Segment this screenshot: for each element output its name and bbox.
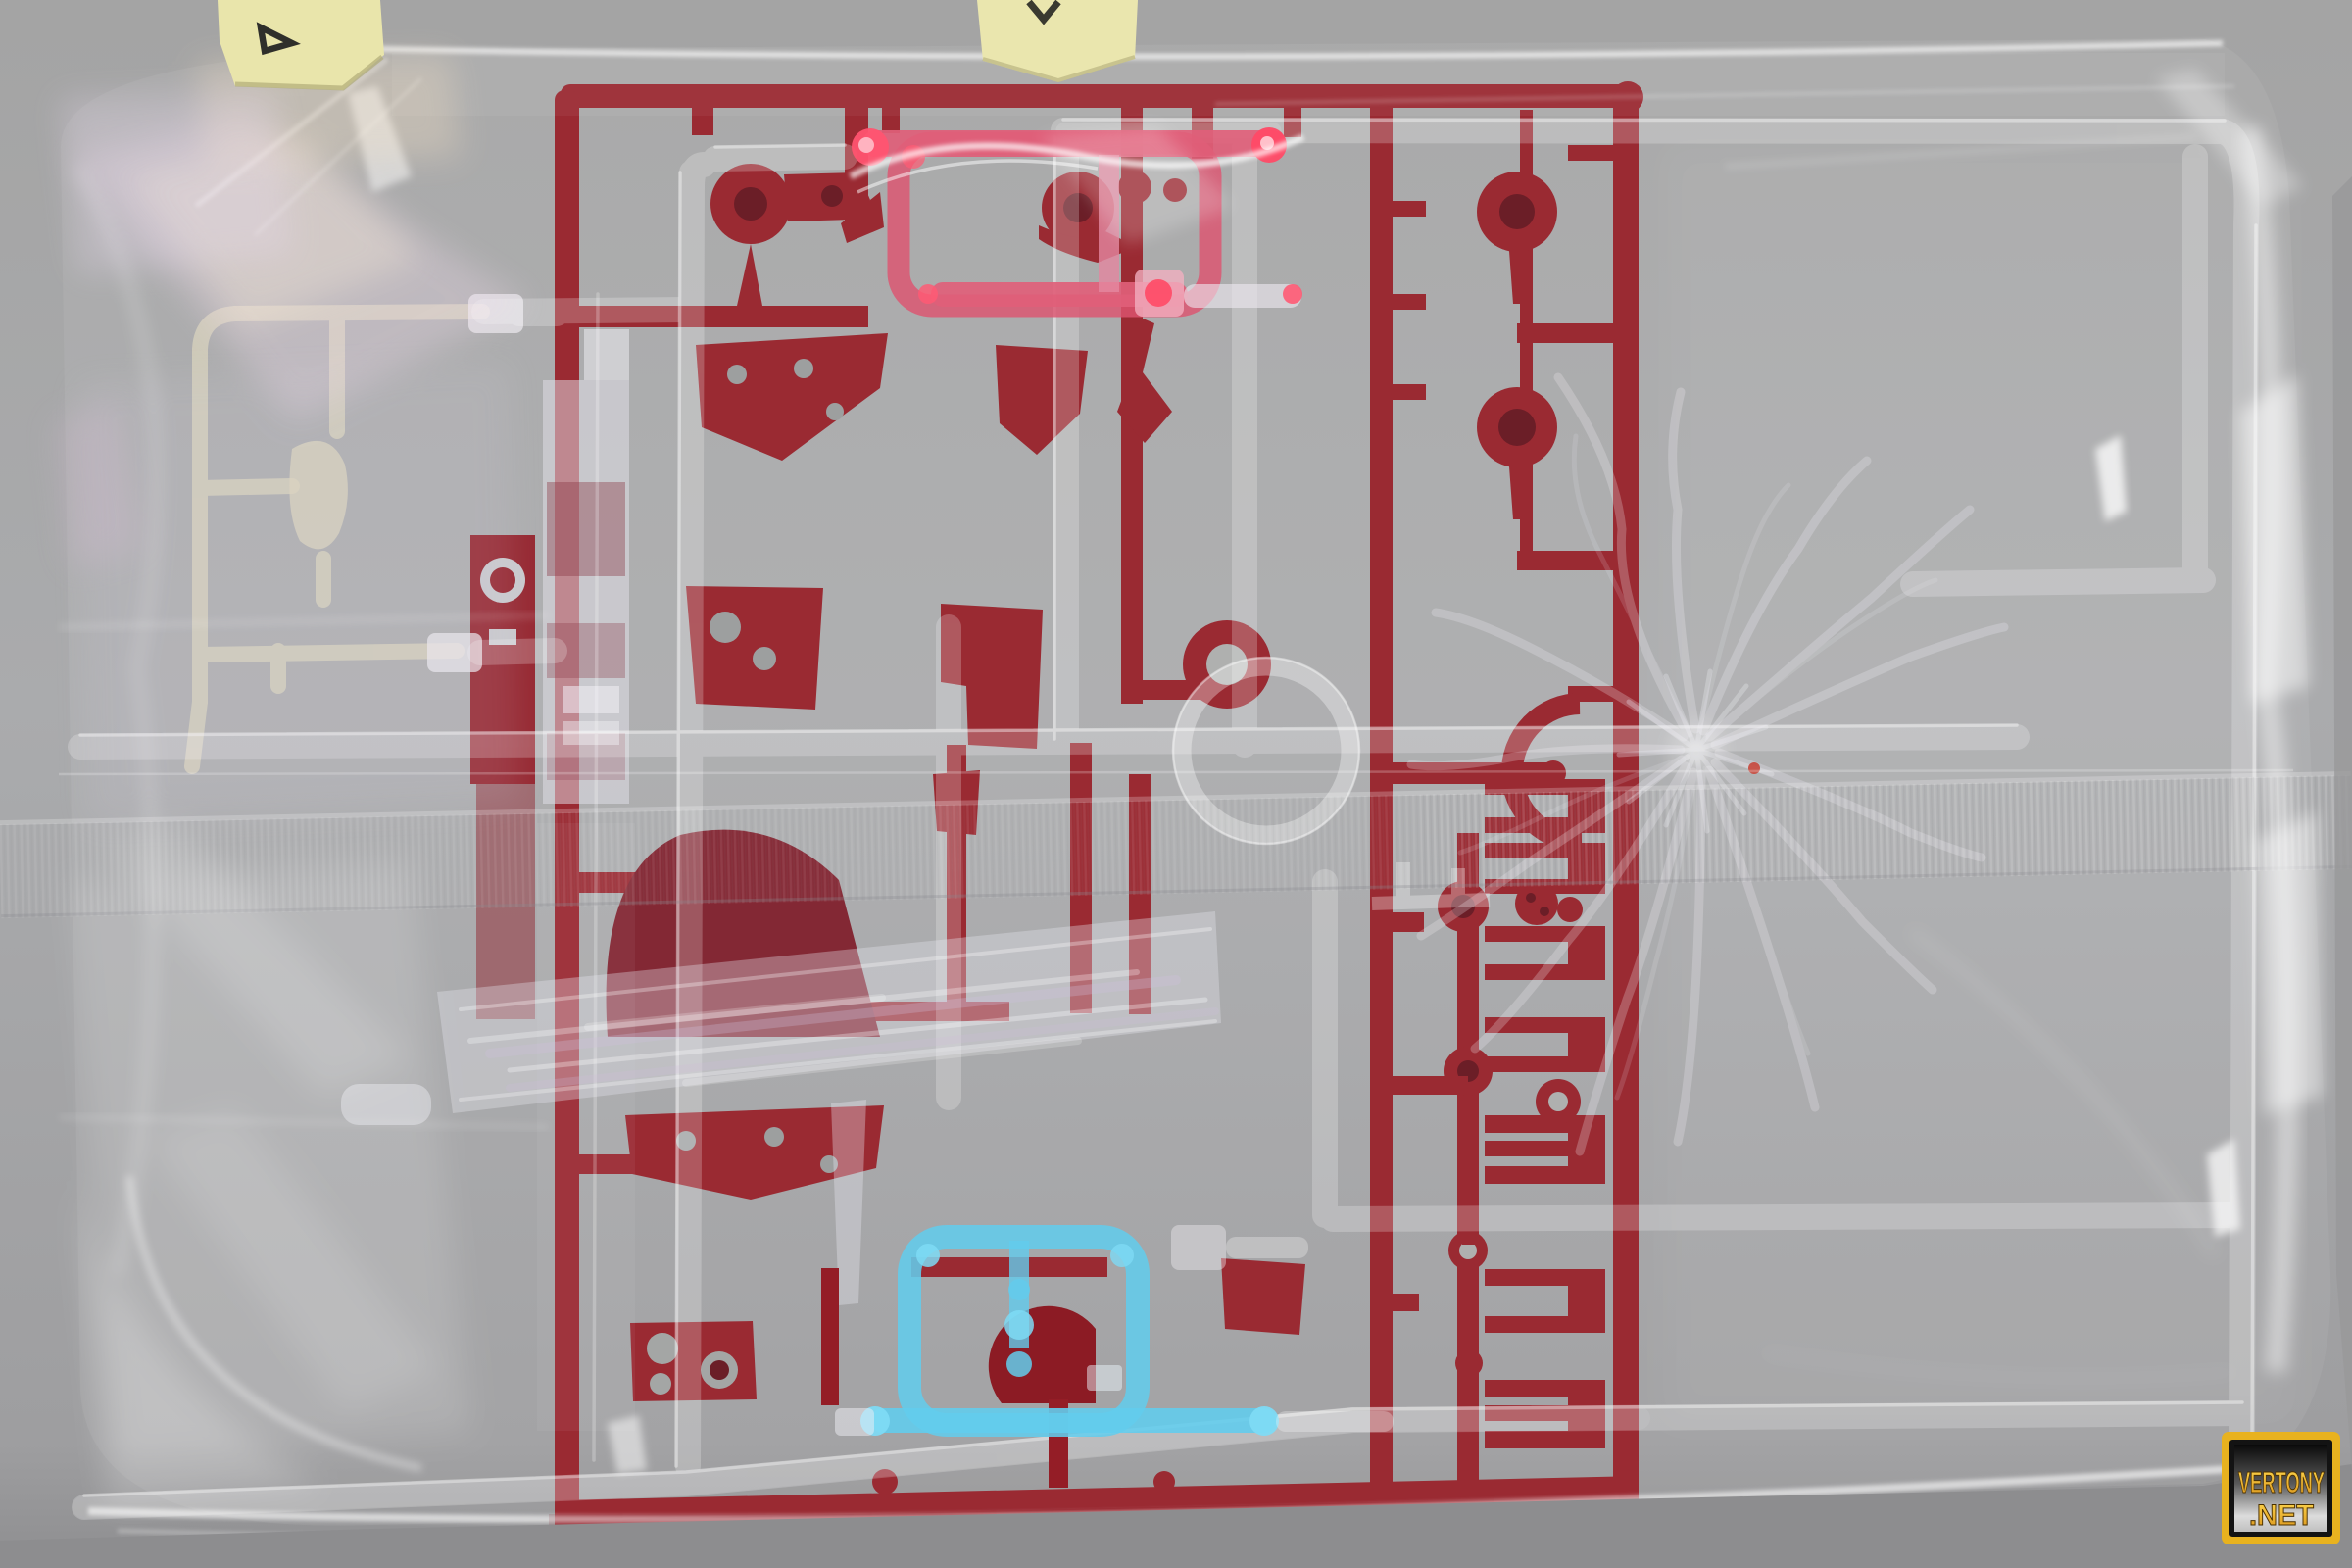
svg-text:VERTONY: VERTONY bbox=[2238, 1465, 2325, 1499]
svg-text:.NET: .NET bbox=[2249, 1499, 2314, 1532]
